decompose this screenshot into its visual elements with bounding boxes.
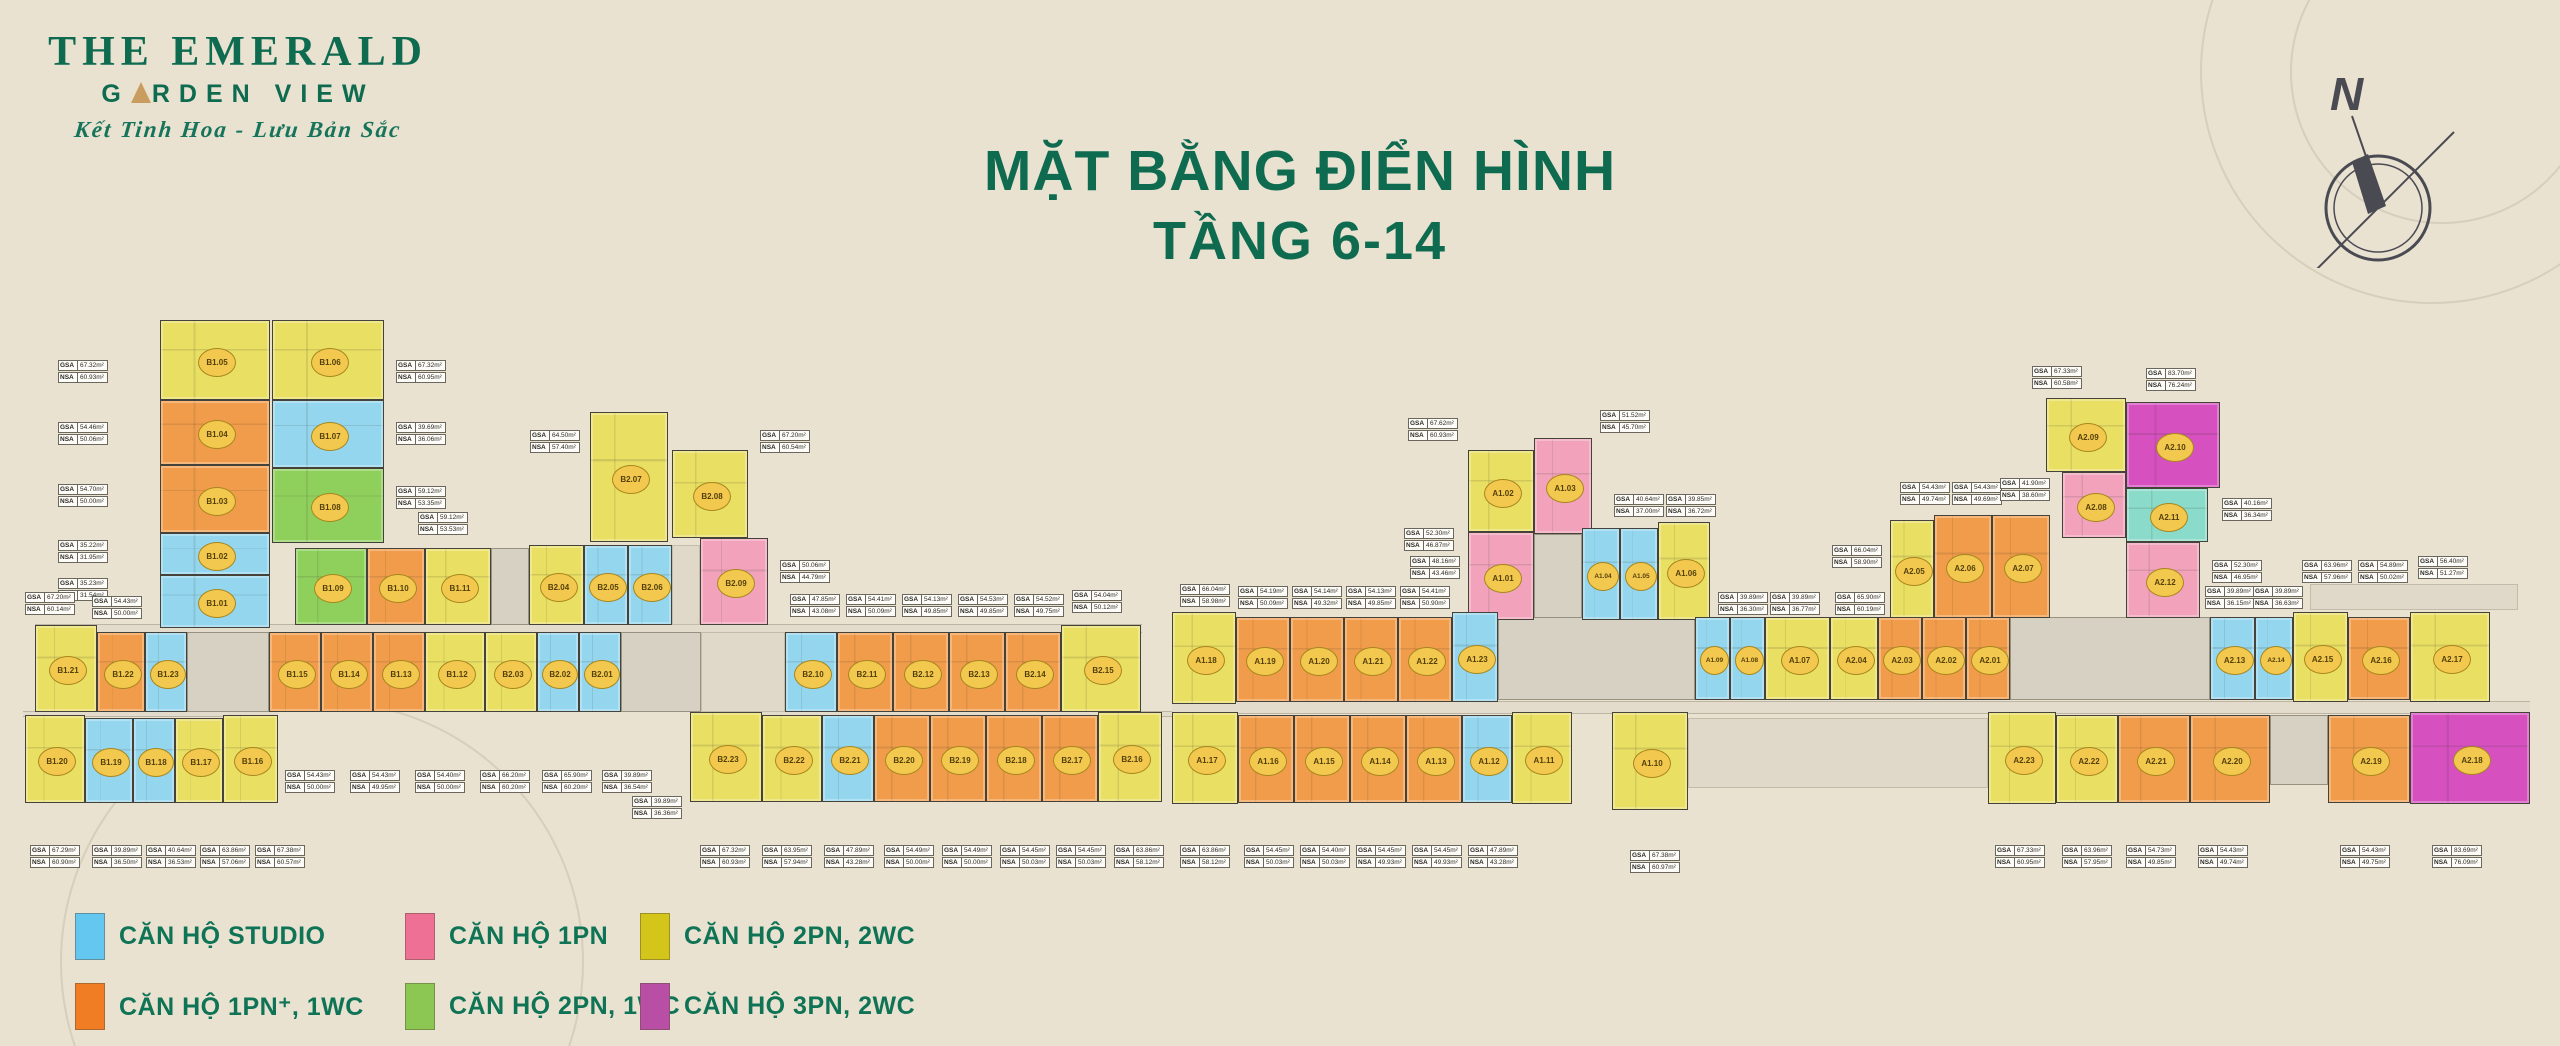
unit-badge: B1.07 (311, 422, 349, 451)
unit-badge: B2.11 (848, 660, 886, 689)
unit-A1.23[interactable]: A1.23 (1452, 612, 1498, 702)
unit-badge: B1.23 (150, 660, 186, 689)
unit-badge: B1.22 (104, 660, 142, 689)
unit-badge: A1.23 (1458, 645, 1496, 674)
unit-A2.19[interactable]: A2.19 (2328, 715, 2410, 803)
area-callout: GSA39.69m²NSA36.06m² (396, 422, 446, 446)
unit-badge: A2.01 (1971, 646, 2009, 675)
unit-B2.10[interactable]: B2.10 (785, 632, 837, 712)
area-callout: GSA65.90m²NSA60.19m² (1835, 592, 1885, 616)
unit-A1.16[interactable]: A1.16 (1238, 715, 1294, 803)
legend-label: CĂN HỘ 3PN, 2WC (684, 992, 915, 1021)
unit-B2.12[interactable]: B2.12 (893, 632, 949, 712)
unit-A2.03[interactable]: A2.03 (1878, 617, 1922, 700)
unit-B1.04[interactable]: B1.04 (160, 400, 270, 465)
unit-B1.07[interactable]: B1.07 (272, 400, 384, 468)
legend-swatch (75, 913, 105, 960)
brand-subtitle: GRDEN VIEW (38, 80, 438, 109)
area-callout: GSA83.70m²NSA76.24m² (2146, 368, 2196, 392)
unit-badge: B2.12 (904, 660, 942, 689)
unit-badge: B2.01 (584, 660, 620, 689)
unit-A2.09[interactable]: A2.09 (2046, 398, 2126, 472)
area-callout: GSA39.89m²NSA36.15m² (2205, 586, 2255, 610)
area-callout: GSA39.89m²NSA36.50m² (92, 845, 142, 869)
area-callout: GSA39.89m²NSA36.36m² (632, 796, 682, 820)
unit-badge: A1.10 (1633, 749, 1671, 778)
unit-badge: B2.08 (693, 482, 731, 511)
unit-A1.17[interactable]: A1.17 (1172, 712, 1238, 804)
unit-badge: A2.16 (2362, 646, 2400, 675)
area-callout: GSA50.06m²NSA44.79m² (780, 560, 830, 584)
unit-A2.15[interactable]: A2.15 (2293, 612, 2348, 702)
area-callout: GSA52.30m²NSA46.87m² (1404, 528, 1454, 552)
unit-B2.13[interactable]: B2.13 (949, 632, 1005, 712)
unit-badge: A2.19 (2352, 747, 2390, 776)
area-callout: GSA54.40m²NSA50.03m² (1300, 845, 1350, 869)
unit-A2.10[interactable]: A2.10 (2126, 402, 2220, 488)
unit-B2.22[interactable]: B2.22 (762, 715, 822, 802)
unit-B2.18[interactable]: B2.18 (986, 715, 1042, 802)
unit-B1.15[interactable]: B1.15 (269, 632, 321, 712)
unit-A1.10[interactable]: A1.10 (1612, 712, 1688, 810)
stair-core-area (187, 632, 269, 712)
area-callout: GSA67.32m²NSA60.93m² (700, 845, 750, 869)
area-callout: GSA40.16m²NSA36.34m² (2222, 498, 2272, 522)
unit-B2.23[interactable]: B2.23 (690, 712, 762, 802)
unit-B1.01[interactable]: B1.01 (160, 575, 270, 628)
unit-badge: A2.10 (2156, 433, 2194, 462)
unit-B2.19[interactable]: B2.19 (930, 715, 986, 802)
area-callout: GSA66.04m²NSA58.90m² (1832, 545, 1882, 569)
legend-label: CĂN HỘ 2PN, 2WC (684, 922, 915, 951)
unit-badge: B1.18 (138, 748, 174, 777)
unit-badge: A2.13 (2216, 646, 2254, 675)
legend-item-c-n-h-1pn-1wc: CĂN HỘ 1PN⁺, 1WC (75, 983, 364, 1030)
area-callout: GSA54.45m²NSA49.93m² (1356, 845, 1406, 869)
unit-A2.17[interactable]: A2.17 (2410, 612, 2490, 702)
legend-swatch (75, 983, 105, 1030)
compass-n-label: N (2330, 68, 2364, 120)
area-callout: GSA63.95m²NSA57.94m² (762, 845, 812, 869)
unit-badge: B2.10 (794, 660, 832, 689)
unit-badge: A1.06 (1667, 559, 1705, 588)
legend-swatch (405, 913, 435, 960)
unit-A1.07[interactable]: A1.07 (1765, 617, 1830, 700)
unit-B1.02[interactable]: B1.02 (160, 533, 270, 575)
unit-badge: A1.13 (1417, 747, 1455, 776)
legend-label: CĂN HỘ STUDIO (119, 922, 326, 951)
area-callout: GSA48.16m²NSA43.46m² (1410, 556, 1460, 580)
unit-badge: B2.15 (1084, 656, 1122, 685)
unit-badge: A1.21 (1354, 647, 1392, 676)
unit-badge: B2.19 (941, 746, 979, 775)
area-callout: GSA39.89m²NSA36.63m² (2253, 586, 2303, 610)
unit-B2.09[interactable]: B2.09 (700, 538, 768, 625)
unit-badge: B2.07 (612, 465, 650, 494)
unit-badge: A2.14 (2260, 646, 2292, 675)
unit-badge: B2.22 (775, 746, 813, 775)
area-callout: GSA54.45m²NSA50.03m² (1244, 845, 1294, 869)
area-callout: GSA41.90m²NSA38.60m² (2000, 478, 2050, 502)
unit-badge: B1.12 (438, 660, 476, 689)
unit-badge: A2.06 (1946, 554, 1984, 583)
unit-badge: B1.13 (382, 660, 420, 689)
area-callout: GSA63.96m²NSA57.95m² (2062, 845, 2112, 869)
area-callout: GSA63.86m²NSA58.12m² (1114, 845, 1164, 869)
unit-badge: A2.18 (2453, 746, 2491, 775)
unit-B2.14[interactable]: B2.14 (1005, 632, 1061, 712)
unit-A2.18[interactable]: A2.18 (2410, 712, 2530, 804)
area-callout: GSA67.32m²NSA60.93m² (58, 360, 108, 384)
unit-B2.02[interactable]: B2.02 (537, 632, 579, 712)
unit-badge: A2.21 (2137, 747, 2175, 776)
unit-badge: A1.11 (1525, 746, 1563, 775)
unit-badge: A1.14 (1361, 747, 1399, 776)
area-callout: GSA67.32m²NSA60.95m² (396, 360, 446, 384)
unit-B2.08[interactable]: B2.08 (672, 450, 748, 538)
unit-badge: B1.19 (92, 748, 130, 777)
area-callout: GSA54.40m²NSA50.00m² (415, 770, 465, 794)
unit-B1.23[interactable]: B1.23 (145, 632, 187, 712)
unit-badge: A2.03 (1883, 646, 1921, 675)
area-callout: GSA40.64m²NSA37.00m² (1614, 494, 1664, 518)
area-callout: GSA54.04m²NSA50.12m² (1072, 590, 1122, 614)
unit-badge: B1.06 (311, 348, 349, 377)
unit-A1.18[interactable]: A1.18 (1172, 612, 1236, 704)
area-callout: GSA67.38m²NSA60.97m² (1630, 850, 1680, 874)
unit-badge: A2.20 (2213, 747, 2251, 776)
unit-badge: A1.22 (1408, 647, 1446, 676)
floorplan-page: THE EMERALD GRDEN VIEW Kết Tinh Hoa - Lư… (0, 0, 2560, 1046)
unit-badge: B1.10 (379, 574, 417, 603)
area-callout: GSA47.89m²NSA43.28m² (1468, 845, 1518, 869)
area-callout: GSA64.50m²NSA57.40m² (530, 430, 580, 454)
unit-badge: B2.23 (709, 745, 747, 774)
unit-B1.08[interactable]: B1.08 (272, 468, 384, 543)
area-callout: GSA67.20m²NSA60.54m² (760, 430, 810, 454)
unit-B1.11[interactable]: B1.11 (425, 548, 491, 625)
unit-badge: A1.02 (1484, 479, 1522, 508)
unit-badge: A1.18 (1187, 646, 1225, 675)
unit-badge: B2.17 (1053, 746, 1091, 775)
unit-badge: A1.08 (1735, 646, 1764, 675)
unit-A1.12[interactable]: A1.12 (1462, 715, 1512, 803)
brand-logo: THE EMERALD GRDEN VIEW Kết Tinh Hoa - Lư… (38, 28, 438, 143)
unit-A1.03[interactable]: A1.03 (1534, 438, 1592, 534)
area-callout: GSA39.89m²NSA36.77m² (1770, 592, 1820, 616)
area-callout: GSA63.86m²NSA57.06m² (200, 845, 250, 869)
lobby-area (2310, 584, 2518, 610)
gold-triangle-icon (131, 82, 151, 103)
unit-badge: A2.09 (2069, 423, 2107, 452)
area-callout: GSA39.89m²NSA36.54m² (602, 770, 652, 794)
legend-item-c-n-h-2pn-1wc: CĂN HỘ 2PN, 1WC (405, 983, 680, 1030)
unit-B2.20[interactable]: B2.20 (874, 715, 930, 802)
unit-badge: A1.17 (1188, 746, 1226, 775)
unit-badge: B1.02 (198, 542, 236, 571)
unit-badge: A2.02 (1927, 646, 1965, 675)
unit-B2.21[interactable]: B2.21 (822, 715, 874, 802)
area-callout: GSA67.38m²NSA60.57m² (255, 845, 305, 869)
unit-badge: B2.14 (1016, 660, 1054, 689)
unit-badge: B1.14 (330, 660, 368, 689)
area-callout: GSA54.43m²NSA49.75m² (2340, 845, 2390, 869)
unit-A2.11[interactable]: A2.11 (2126, 488, 2208, 542)
unit-badge: B2.02 (542, 660, 578, 689)
unit-B2.06[interactable]: B2.06 (628, 545, 672, 625)
unit-badge: B2.03 (494, 660, 532, 689)
lobby-area (672, 545, 700, 625)
area-callout: GSA54.45m²NSA50.03m² (1056, 845, 1106, 869)
unit-A2.12[interactable]: A2.12 (2126, 542, 2200, 618)
unit-A1.01[interactable]: A1.01 (1468, 532, 1534, 620)
unit-A1.22[interactable]: A1.22 (1398, 617, 1452, 702)
area-callout: GSA54.73m²NSA49.85m² (2126, 845, 2176, 869)
unit-B1.14[interactable]: B1.14 (321, 632, 373, 712)
unit-B2.16[interactable]: B2.16 (1098, 712, 1162, 802)
area-callout: GSA54.43m²NSA49.74m² (1900, 482, 1950, 506)
compass-north-icon: N (2292, 58, 2482, 268)
legend-label: CĂN HỘ 1PN (449, 922, 608, 951)
unit-B1.21[interactable]: B1.21 (35, 625, 97, 712)
area-callout: GSA83.69m²NSA76.09m² (2432, 845, 2482, 869)
unit-badge: A1.16 (1249, 747, 1287, 776)
unit-badge: B1.17 (182, 748, 220, 777)
unit-badge: A1.03 (1546, 474, 1584, 503)
unit-A1.13[interactable]: A1.13 (1406, 715, 1462, 803)
unit-badge: A2.23 (2005, 746, 2043, 775)
unit-badge: A2.17 (2433, 645, 2471, 674)
unit-A2.08[interactable]: A2.08 (2062, 472, 2126, 538)
legend-swatch (405, 983, 435, 1030)
unit-A2.20[interactable]: A2.20 (2190, 715, 2270, 803)
area-callout: GSA40.64m²NSA36.53m² (146, 845, 196, 869)
unit-A2.06[interactable]: A2.06 (1934, 515, 1992, 618)
area-callout: GSA35.22m²NSA31.95m² (58, 540, 108, 564)
unit-badge: B2.05 (589, 573, 627, 602)
area-callout: GSA66.20m²NSA60.20m² (480, 770, 530, 794)
unit-badge: B2.18 (997, 746, 1035, 775)
unit-badge: A1.05 (1625, 562, 1657, 591)
unit-B1.17[interactable]: B1.17 (175, 718, 223, 803)
unit-badge: A1.07 (1781, 646, 1819, 675)
unit-A1.02[interactable]: A1.02 (1468, 450, 1534, 532)
unit-A1.09[interactable]: A1.09 (1695, 617, 1730, 700)
unit-badge: B1.15 (278, 660, 316, 689)
area-callout: GSA67.20m²NSA60.14m² (25, 592, 75, 616)
unit-B1.06[interactable]: B1.06 (272, 320, 384, 400)
area-callout: GSA67.33m²NSA60.95m² (1995, 845, 2045, 869)
unit-A2.02[interactable]: A2.02 (1922, 617, 1966, 700)
unit-B2.07[interactable]: B2.07 (590, 412, 668, 542)
area-callout: GSA67.29m²NSA60.90m² (30, 845, 80, 869)
unit-B1.18[interactable]: B1.18 (133, 718, 175, 803)
unit-badge: B2.06 (633, 573, 671, 602)
unit-badge: B2.20 (885, 746, 923, 775)
stair-core-area (2270, 715, 2328, 785)
stair-core-area (491, 548, 529, 625)
area-callout: GSA54.43m²NSA49.69m² (1952, 482, 2002, 506)
unit-A1.15[interactable]: A1.15 (1294, 715, 1350, 803)
unit-badge: A2.07 (2004, 554, 2042, 583)
area-callout: GSA56.40m²NSA51.27m² (2418, 556, 2468, 580)
unit-A1.20[interactable]: A1.20 (1290, 617, 1344, 702)
lobby-area (701, 632, 785, 712)
unit-A1.11[interactable]: A1.11 (1512, 712, 1572, 804)
unit-badge: B1.01 (198, 589, 236, 618)
unit-A1.06[interactable]: A1.06 (1658, 522, 1710, 620)
title-line-2: TẦNG 6-14 (880, 210, 1720, 272)
area-callout: GSA51.52m²NSA45.70m² (1600, 410, 1650, 434)
unit-badge: B1.09 (314, 574, 352, 603)
area-callout: GSA39.85m²NSA36.72m² (1666, 494, 1716, 518)
stair-core-area (1534, 534, 1582, 620)
unit-badge: B1.16 (234, 747, 272, 776)
unit-badge: A2.08 (2077, 493, 2115, 522)
unit-badge: B1.20 (38, 747, 76, 776)
area-callout: GSA67.62m²NSA60.93m² (1408, 418, 1458, 442)
area-callout: GSA47.85m²NSA43.08m² (790, 594, 840, 618)
stair-core-area (621, 632, 701, 712)
unit-B2.01[interactable]: B2.01 (579, 632, 621, 712)
corridor (1172, 701, 2530, 714)
area-callout: GSA54.45m²NSA50.03m² (1000, 845, 1050, 869)
area-callout: GSA54.43m²NSA50.00m² (285, 770, 335, 794)
unit-B1.20[interactable]: B1.20 (25, 715, 85, 803)
area-callout: GSA54.19m²NSA50.09m² (1238, 586, 1288, 610)
unit-B1.22[interactable]: B1.22 (97, 632, 145, 712)
unit-B1.10[interactable]: B1.10 (367, 548, 425, 625)
unit-A2.13[interactable]: A2.13 (2210, 617, 2255, 700)
area-callout: GSA54.13m²NSA49.85m² (1346, 586, 1396, 610)
unit-badge: A2.04 (1837, 646, 1875, 675)
legend-item-c-n-h-3pn-2wc: CĂN HỘ 3PN, 2WC (640, 983, 915, 1030)
area-callout: GSA54.52m²NSA49.75m² (1014, 594, 1064, 618)
area-callout: GSA54.46m²NSA50.06m² (58, 422, 108, 446)
area-callout: GSA47.89m²NSA43.28m² (824, 845, 874, 869)
unit-A1.08[interactable]: A1.08 (1730, 617, 1765, 700)
unit-B2.15[interactable]: B2.15 (1061, 625, 1141, 712)
unit-badge: B1.21 (49, 656, 87, 685)
area-callout: GSA54.49m²NSA50.00m² (884, 845, 934, 869)
unit-A1.05[interactable]: A1.05 (1620, 528, 1658, 620)
unit-badge: B2.21 (831, 746, 869, 775)
unit-B1.16[interactable]: B1.16 (223, 715, 278, 803)
area-callout: GSA67.33m²NSA60.58m² (2032, 366, 2082, 390)
brand-name: THE EMERALD (38, 28, 438, 76)
unit-A2.05[interactable]: A2.05 (1890, 520, 1934, 618)
area-callout: GSA54.89m²NSA50.02m² (2358, 560, 2408, 584)
unit-badge: B2.16 (1113, 745, 1151, 774)
unit-B1.13[interactable]: B1.13 (373, 632, 425, 712)
unit-A2.21[interactable]: A2.21 (2118, 715, 2190, 803)
unit-B2.03[interactable]: B2.03 (485, 632, 537, 712)
lobby-area (1688, 718, 1988, 788)
unit-badge: A1.01 (1484, 564, 1522, 593)
legend-item-c-n-h-studio: CĂN HỘ STUDIO (75, 913, 326, 960)
title-line-1: MẶT BẰNG ĐIỂN HÌNH (880, 138, 1720, 204)
unit-B1.09[interactable]: B1.09 (295, 548, 367, 625)
unit-A2.01[interactable]: A2.01 (1966, 617, 2010, 700)
unit-badge: B1.04 (198, 420, 236, 449)
legend-swatch (640, 983, 670, 1030)
unit-badge: A2.05 (1895, 557, 1933, 586)
unit-badge: A2.15 (2304, 645, 2342, 674)
unit-B1.19[interactable]: B1.19 (85, 718, 133, 803)
area-callout: GSA63.86m²NSA58.12m² (1180, 845, 1230, 869)
area-callout: GSA39.89m²NSA36.30m² (1718, 592, 1768, 616)
area-callout: GSA54.41m²NSA50.90m² (1400, 586, 1450, 610)
unit-badge: B1.08 (311, 493, 349, 522)
unit-badge: B2.13 (960, 660, 998, 689)
area-callout: GSA54.43m²NSA49.74m² (2198, 845, 2248, 869)
stair-core-area (2010, 617, 2210, 700)
unit-B1.05[interactable]: B1.05 (160, 320, 270, 400)
unit-badge: A2.12 (2146, 568, 2184, 597)
unit-badge: A2.11 (2150, 503, 2188, 532)
area-callout: GSA54.13m²NSA49.85m² (902, 594, 952, 618)
area-callout: GSA66.04m²NSA58.98m² (1180, 584, 1230, 608)
unit-B2.04[interactable]: B2.04 (529, 545, 584, 625)
unit-A2.14[interactable]: A2.14 (2255, 617, 2293, 700)
area-callout: GSA65.90m²NSA60.20m² (542, 770, 592, 794)
page-title: MẶT BẰNG ĐIỂN HÌNH TẦNG 6-14 (880, 138, 1720, 272)
unit-A1.21[interactable]: A1.21 (1344, 617, 1398, 702)
unit-badge: A1.15 (1305, 747, 1343, 776)
unit-badge: A1.12 (1470, 747, 1508, 776)
legend-label: CĂN HỘ 1PN⁺, 1WC (119, 992, 364, 1022)
area-callout: GSA52.30m²NSA46.95m² (2212, 560, 2262, 584)
area-callout: GSA54.41m²NSA50.09m² (846, 594, 896, 618)
unit-B2.17[interactable]: B2.17 (1042, 715, 1098, 802)
unit-badge: A1.04 (1587, 562, 1619, 591)
unit-A2.22[interactable]: A2.22 (2056, 715, 2118, 803)
area-callout: GSA63.96m²NSA57.96m² (2302, 560, 2352, 584)
legend-item-c-n-h-1pn: CĂN HỘ 1PN (405, 913, 608, 960)
unit-badge: B1.05 (198, 348, 236, 377)
unit-badge: B2.04 (540, 573, 578, 602)
area-callout: GSA54.53m²NSA49.85m² (958, 594, 1008, 618)
area-callout: GSA54.43m²NSA49.95m² (350, 770, 400, 794)
unit-badge: B2.09 (717, 569, 755, 598)
area-callout: GSA54.43m²NSA50.00m² (92, 596, 142, 620)
unit-B2.05[interactable]: B2.05 (584, 545, 628, 625)
area-callout: GSA54.45m²NSA49.93m² (1412, 845, 1462, 869)
unit-badge: B1.03 (198, 487, 236, 516)
unit-B1.12[interactable]: B1.12 (425, 632, 485, 712)
unit-B1.03[interactable]: B1.03 (160, 465, 270, 533)
unit-A1.14[interactable]: A1.14 (1350, 715, 1406, 803)
stair-core-area (1498, 617, 1695, 700)
unit-A2.16[interactable]: A2.16 (2348, 617, 2410, 700)
unit-A2.07[interactable]: A2.07 (1992, 515, 2050, 618)
unit-A2.04[interactable]: A2.04 (1830, 617, 1878, 700)
unit-badge: A1.09 (1700, 646, 1729, 675)
area-callout: GSA54.70m²NSA50.00m² (58, 484, 108, 508)
area-callout: GSA54.49m²NSA50.00m² (942, 845, 992, 869)
unit-B2.11[interactable]: B2.11 (837, 632, 893, 712)
legend-item-c-n-h-2pn-2wc: CĂN HỘ 2PN, 2WC (640, 913, 915, 960)
unit-A1.04[interactable]: A1.04 (1582, 528, 1620, 620)
legend-swatch (640, 913, 670, 960)
unit-A1.19[interactable]: A1.19 (1236, 617, 1290, 702)
unit-A2.23[interactable]: A2.23 (1988, 712, 2056, 804)
area-callout: GSA59.12m²NSA53.53m² (418, 512, 468, 536)
unit-badge: A2.22 (2070, 747, 2108, 776)
unit-badge: A1.19 (1246, 647, 1284, 676)
area-callout: GSA59.12m²NSA53.35m² (396, 486, 446, 510)
area-callout: GSA54.14m²NSA49.32m² (1292, 586, 1342, 610)
